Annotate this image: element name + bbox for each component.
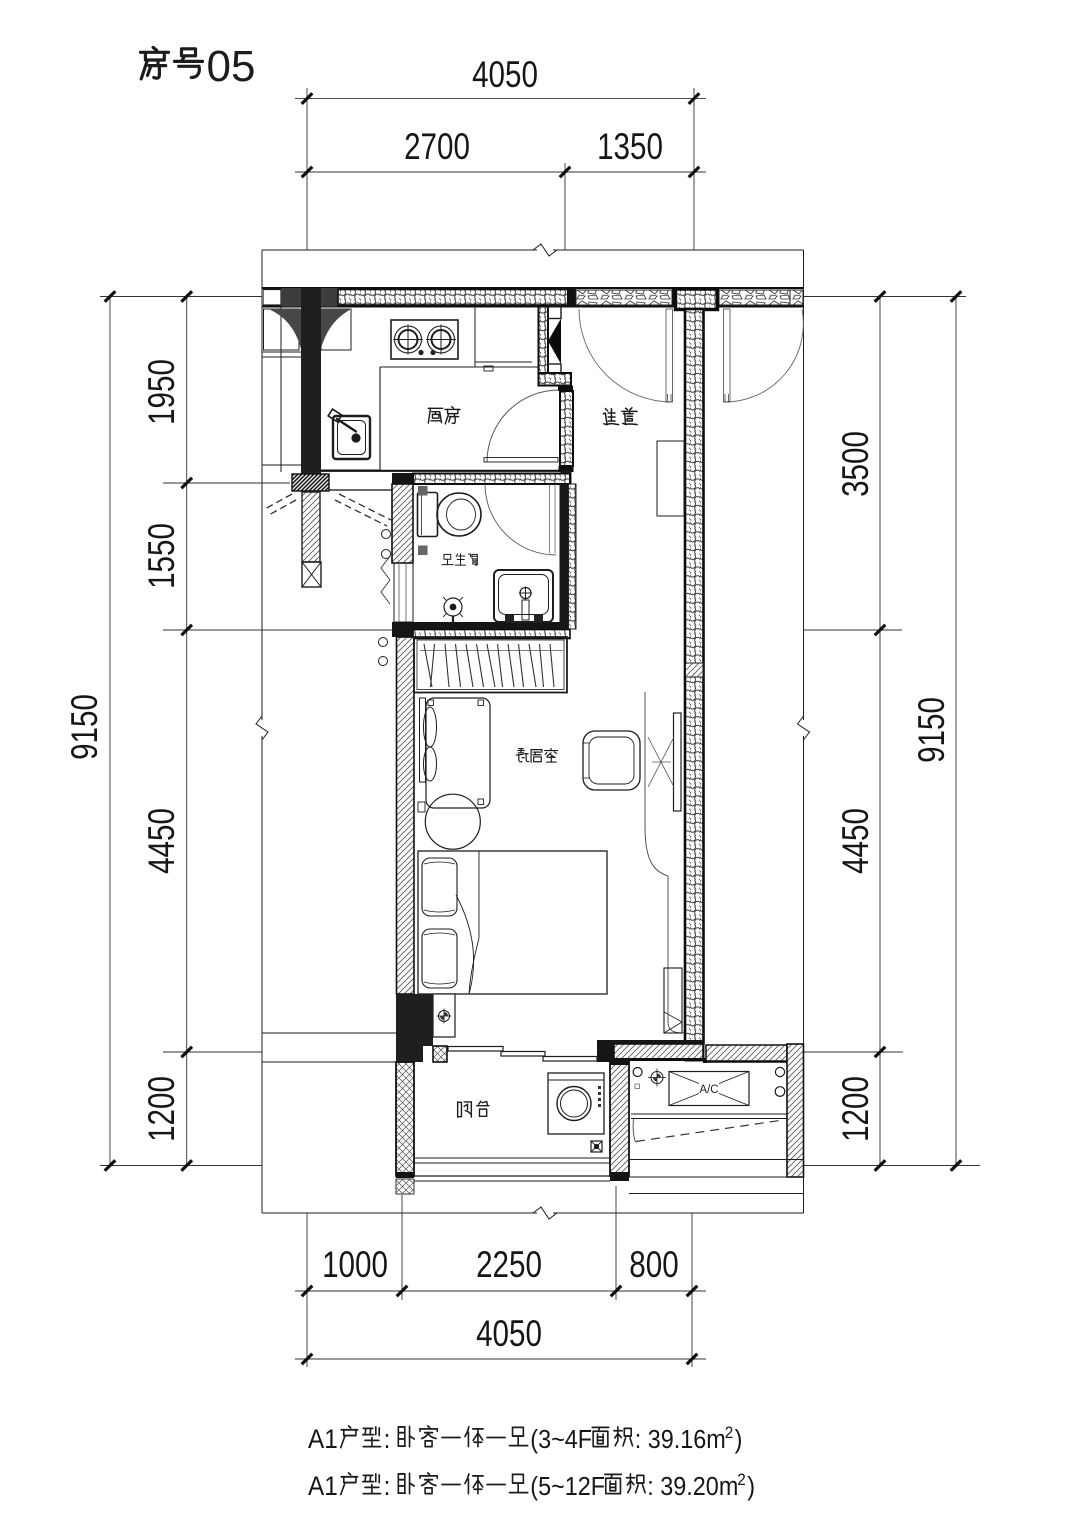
svg-text:1200: 1200	[836, 1076, 877, 1142]
svg-text:(5~12F: (5~12F	[530, 1473, 605, 1501]
svg-text:800: 800	[629, 1245, 678, 1286]
svg-text:2700: 2700	[404, 127, 470, 168]
svg-text:: 39.20m: : 39.20m	[647, 1473, 738, 1501]
svg-text:1350: 1350	[597, 127, 663, 168]
svg-text:4050: 4050	[476, 1314, 542, 1355]
svg-text::: :	[384, 1472, 391, 1501]
svg-text:2: 2	[725, 1423, 734, 1442]
svg-text:): )	[747, 1473, 755, 1501]
svg-text:3500: 3500	[836, 431, 877, 497]
svg-text:1000: 1000	[322, 1245, 388, 1286]
svg-text:A1: A1	[308, 1425, 338, 1454]
svg-text:(3~4F: (3~4F	[530, 1426, 592, 1454]
svg-text:9150: 9150	[65, 694, 106, 760]
svg-text:05: 05	[207, 42, 256, 91]
svg-text:9150: 9150	[912, 697, 953, 763]
svg-text:4450: 4450	[142, 808, 183, 874]
svg-text:A1: A1	[308, 1472, 338, 1501]
svg-text:4450: 4450	[836, 808, 877, 874]
svg-text:): )	[735, 1426, 743, 1454]
svg-text::: :	[384, 1425, 391, 1454]
svg-text:2: 2	[737, 1470, 746, 1489]
svg-text:A/C: A/C	[699, 1084, 718, 1096]
svg-text:1550: 1550	[142, 523, 183, 589]
svg-text:1950: 1950	[142, 359, 183, 425]
svg-text:4050: 4050	[472, 55, 538, 96]
svg-text:2250: 2250	[476, 1245, 542, 1286]
svg-text:1200: 1200	[142, 1076, 183, 1142]
svg-text:: 39.16m: : 39.16m	[635, 1426, 726, 1454]
